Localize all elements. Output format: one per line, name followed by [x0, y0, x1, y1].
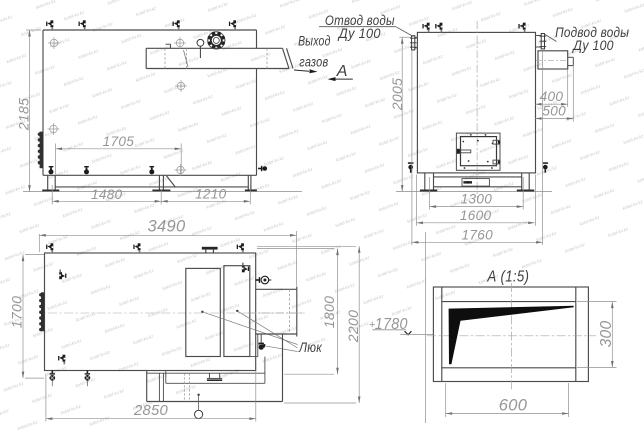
svg-text:400: 400 — [540, 89, 564, 104]
svg-text:2005: 2005 — [389, 78, 405, 111]
svg-text:Выход: Выход — [298, 33, 331, 48]
svg-text:500: 500 — [542, 104, 566, 119]
svg-text:1300: 1300 — [461, 192, 493, 207]
svg-text:А (1:5): А (1:5) — [487, 269, 530, 286]
svg-text:2850: 2850 — [133, 403, 169, 419]
svg-text:600: 600 — [499, 397, 528, 415]
svg-text:2185: 2185 — [15, 98, 31, 131]
svg-text:1600: 1600 — [460, 208, 492, 223]
svg-text:1480: 1480 — [91, 187, 123, 202]
svg-text:газов: газов — [299, 54, 328, 69]
svg-text:300: 300 — [598, 321, 615, 348]
svg-text:1780: 1780 — [375, 316, 408, 333]
svg-text:3490: 3490 — [148, 218, 186, 236]
svg-text:1700: 1700 — [8, 296, 24, 328]
svg-text:1760: 1760 — [462, 227, 494, 242]
svg-text:А: А — [336, 63, 348, 80]
svg-text:Ду 100: Ду 100 — [337, 25, 381, 41]
svg-text:1210: 1210 — [195, 187, 227, 202]
svg-text:1800: 1800 — [321, 296, 337, 328]
svg-text:1705: 1705 — [103, 134, 135, 149]
svg-text:Ду 100: Ду 100 — [572, 37, 614, 53]
svg-text:2200: 2200 — [345, 310, 361, 343]
svg-text:Люк: Люк — [298, 340, 322, 355]
